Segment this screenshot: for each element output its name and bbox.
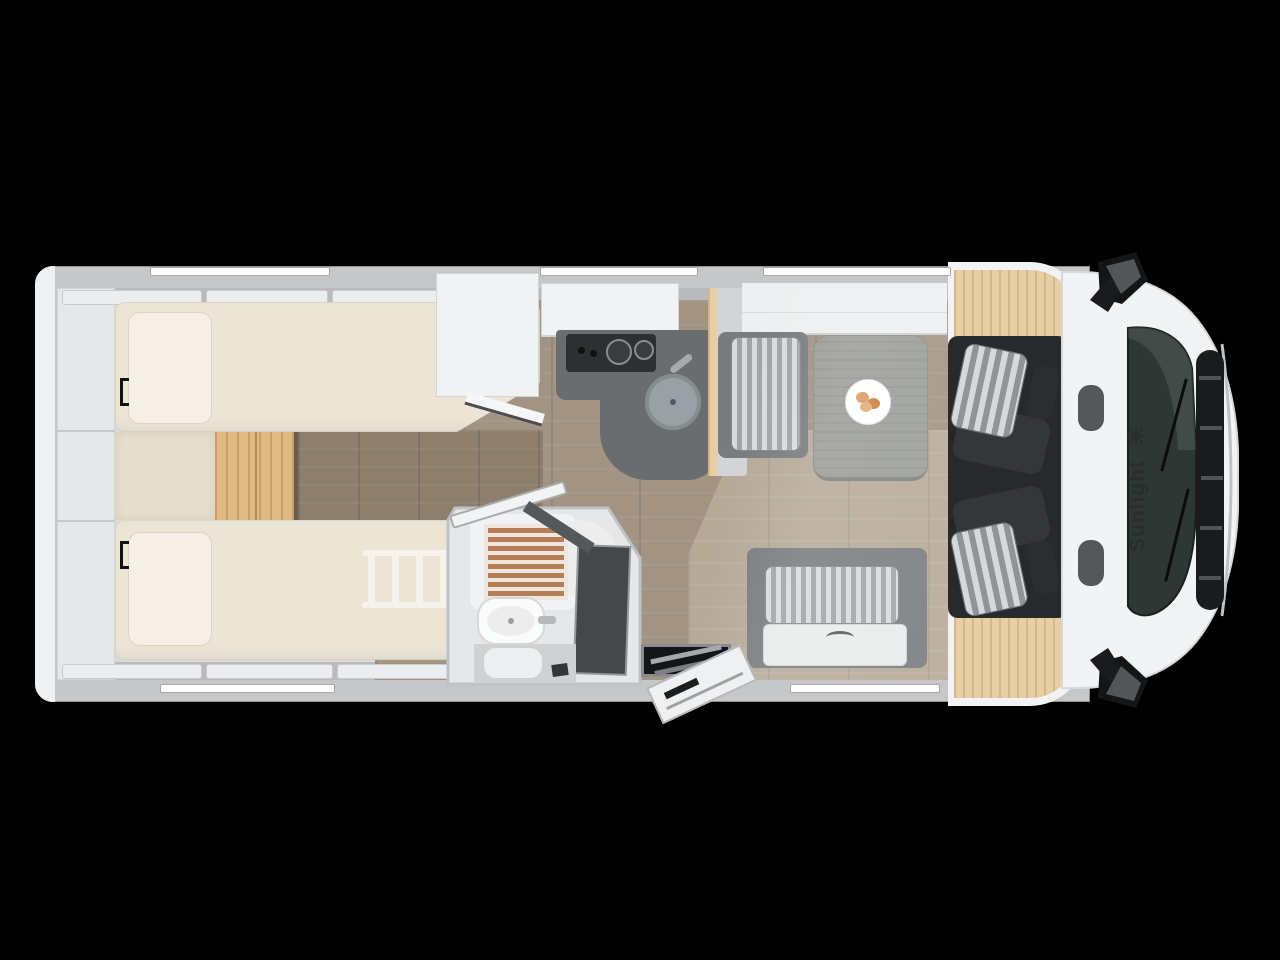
roof-window bbox=[540, 267, 698, 276]
plate-icon bbox=[845, 379, 891, 425]
bench-front-cushion bbox=[765, 566, 899, 624]
wardrobe-divider bbox=[57, 430, 115, 432]
roof-window bbox=[150, 267, 330, 276]
bed-step-divider bbox=[255, 432, 257, 520]
roof-window bbox=[763, 267, 951, 276]
sink-icon bbox=[645, 374, 701, 430]
kitchen-overhead-cabinet bbox=[541, 283, 679, 337]
sideboard-seam bbox=[742, 312, 947, 313]
dinette-table bbox=[813, 335, 928, 481]
washbasin-reflection bbox=[484, 648, 542, 678]
pillow-top-bed bbox=[128, 312, 212, 424]
bench-left-cushion bbox=[731, 337, 801, 451]
hood-vent bbox=[1078, 540, 1104, 586]
cooktop bbox=[566, 334, 656, 372]
motorhome-floorplan: Sunlight bbox=[0, 0, 1280, 960]
pillow-bottom-bed bbox=[128, 532, 212, 646]
rear-wall bbox=[35, 266, 55, 702]
ladder-rung bbox=[416, 552, 423, 608]
grab-handle-icon bbox=[120, 378, 129, 406]
hood-vent bbox=[1078, 385, 1104, 431]
bench-front-backrest bbox=[763, 624, 907, 666]
dinette-sideboard bbox=[742, 283, 947, 335]
burner-icon bbox=[634, 340, 654, 360]
brand-wordmark: Sunlight bbox=[1126, 460, 1149, 552]
ladder-rung bbox=[392, 552, 399, 608]
sink-drain bbox=[670, 399, 676, 405]
washbasin-drain bbox=[508, 618, 514, 624]
ladder-rung bbox=[368, 552, 375, 608]
backrest-handle bbox=[826, 631, 854, 644]
cab-front: Sunlight bbox=[940, 240, 1280, 720]
pantry-cabinet bbox=[436, 273, 539, 397]
scene: Sunlight bbox=[0, 0, 1280, 960]
cooktop-knob bbox=[578, 347, 585, 354]
sun-rays-icon bbox=[1128, 428, 1144, 444]
partition-wood-edge bbox=[708, 288, 717, 476]
grab-handle-icon bbox=[120, 541, 129, 569]
food-item bbox=[860, 402, 872, 412]
roof-window bbox=[790, 684, 940, 693]
overhead-locker bbox=[206, 664, 333, 679]
headboard-cushion bbox=[115, 432, 215, 520]
floor-hatch bbox=[551, 663, 569, 677]
rear-wardrobe-column bbox=[57, 288, 115, 680]
cooktop-knob bbox=[590, 350, 597, 357]
roof-window bbox=[160, 684, 335, 693]
burner-icon bbox=[606, 339, 632, 365]
overhead-locker bbox=[62, 664, 202, 679]
bathroom-mirror-panel bbox=[574, 545, 630, 675]
shower-mat-base bbox=[484, 524, 568, 600]
faucet-icon bbox=[538, 616, 556, 624]
wardrobe-divider bbox=[57, 520, 115, 522]
